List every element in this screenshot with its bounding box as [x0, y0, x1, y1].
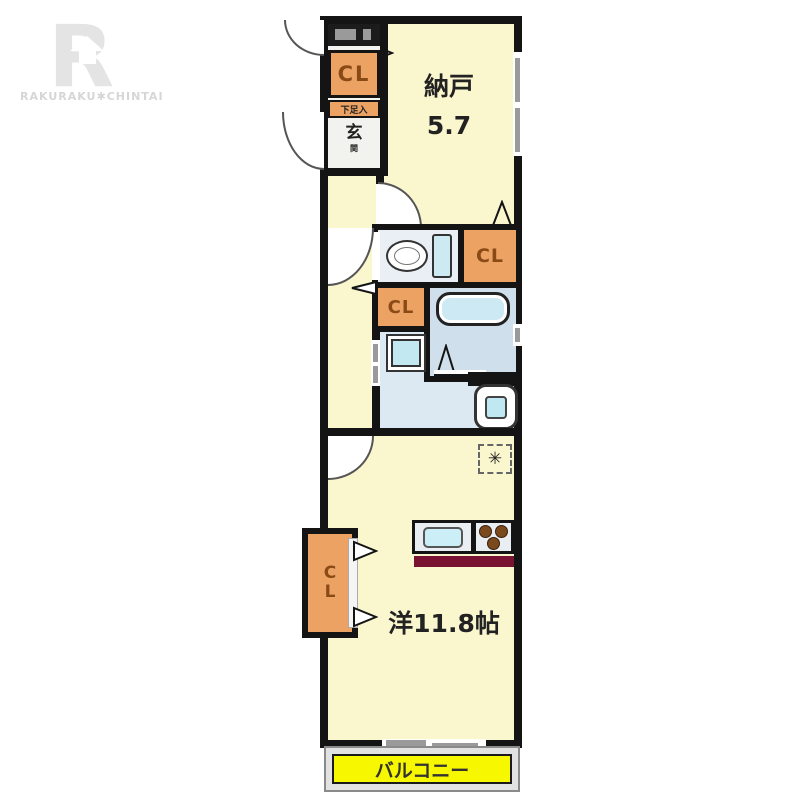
closet-fold-arrow-icon [352, 540, 378, 562]
washroom-side-closet: CL [372, 282, 430, 332]
bedroom-closet-letter: C [324, 564, 336, 583]
toilet-tank-icon [432, 234, 452, 278]
closet-fold-arrow-icon [352, 606, 378, 628]
bath-vent-sash [515, 328, 520, 342]
stove-burner-icon [479, 525, 492, 538]
kitchen-counter-front [414, 556, 514, 567]
main-room-label: 洋11.8帖 [364, 604, 524, 640]
stove-burner-icon [495, 525, 508, 538]
toilet-side-closet: CL [458, 224, 522, 288]
balcony: バルコニー [324, 746, 520, 792]
main-room-door-swing [328, 436, 374, 480]
kitchen-sink-icon [423, 527, 463, 548]
genkan-label-sub: 関 [328, 143, 380, 154]
upper-exterior-door-swing [284, 20, 324, 56]
brand-logo-house-roof-icon [70, 36, 104, 51]
bathtub-icon [436, 292, 510, 326]
genkan-area: 玄 関 [328, 118, 380, 168]
meter-box-slot [335, 29, 356, 40]
entrance-door-swing [282, 112, 324, 170]
washing-machine-pan-icon [386, 334, 426, 372]
toilet-door-gap [372, 232, 380, 280]
entry-closet: CL [328, 50, 380, 98]
toilet-door-arrow-icon [350, 280, 378, 296]
meter-box [328, 24, 380, 46]
washroom-door-sash [373, 366, 378, 383]
meter-box-slot [363, 29, 371, 40]
toilet-room [372, 224, 466, 288]
toilet-bowl-icon [386, 240, 428, 272]
genkan-label: 玄 [328, 124, 380, 143]
floorplan-page: R RAKURAKU✱CHINTAI 納戸 5.7 CL 下足入 玄 関 [0, 0, 800, 800]
bathroom [424, 282, 522, 382]
bedroom-closet-letter: L [325, 583, 336, 602]
storage-room-label: 納戸 [384, 68, 514, 102]
entrance-column: CL 下足入 玄 関 [320, 16, 388, 176]
hallway-floor [320, 168, 380, 438]
shoe-cabinet: 下足入 [328, 100, 380, 118]
washroom-door-sash [373, 344, 378, 362]
balcony-label: バルコニー [332, 754, 512, 784]
stove-burner-icon [487, 537, 500, 550]
storage-window-sash [515, 108, 520, 152]
kitchen-counter [412, 520, 514, 554]
aircon-mark: ✳ [478, 444, 512, 474]
storage-room-area: 5.7 [384, 108, 514, 142]
kitchen-divider [471, 523, 476, 551]
brand-logo-house-body-icon [79, 50, 96, 64]
brand-name: RAKURAKU✱CHINTAI [20, 90, 164, 103]
storage-window-sash [515, 58, 520, 102]
washbasin-icon [474, 384, 518, 430]
